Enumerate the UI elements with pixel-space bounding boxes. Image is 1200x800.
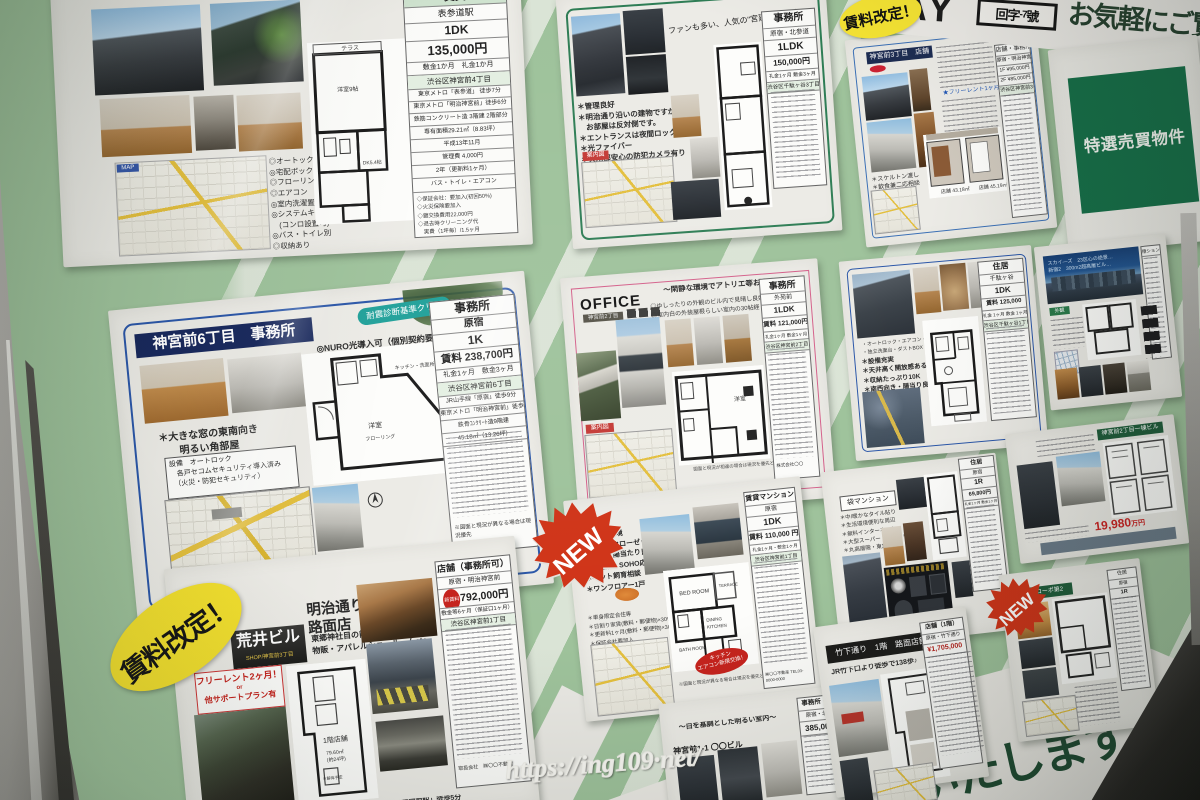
svg-text:テラス: テラス [341, 45, 359, 53]
svg-text:DK5.4帖: DK5.4帖 [363, 159, 382, 167]
